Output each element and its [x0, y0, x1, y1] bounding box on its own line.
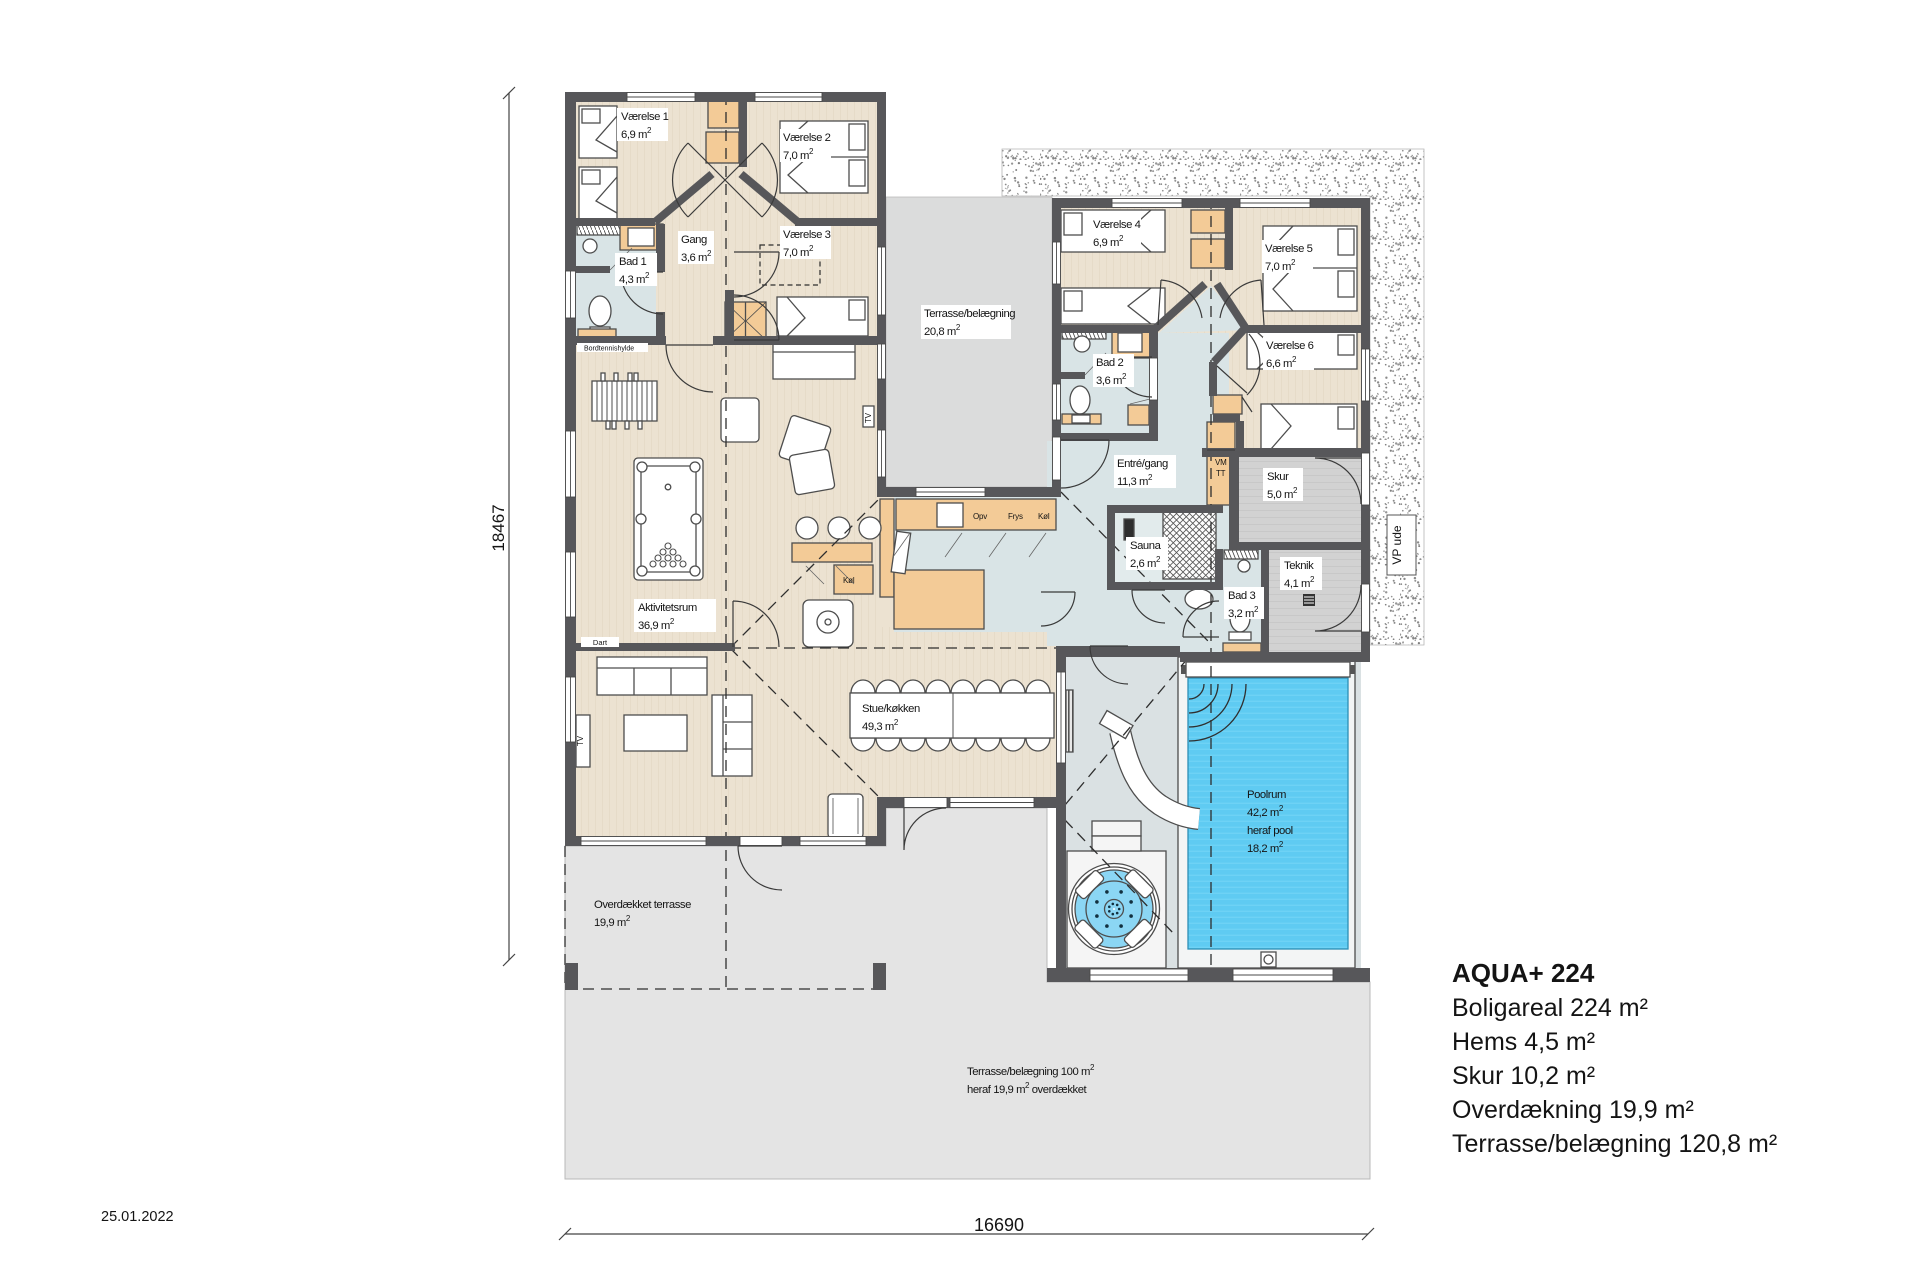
- svg-text:VP ude: VP ude: [1390, 525, 1404, 564]
- svg-text:TT: TT: [1216, 469, 1226, 478]
- svg-text:VM: VM: [1215, 458, 1227, 467]
- svg-text:Boligareal 224 m²: Boligareal 224 m²: [1452, 994, 1648, 1022]
- svg-text:Terrasse/belægning 100 m2: Terrasse/belægning 100 m2: [967, 1063, 1095, 1078]
- svg-text:TV: TV: [864, 412, 873, 423]
- svg-text:Poolrum: Poolrum: [1247, 789, 1286, 801]
- svg-text:Bordtennishylde: Bordtennishylde: [584, 346, 634, 353]
- svg-text:42,2 m2: 42,2 m2: [1247, 804, 1284, 819]
- svg-text:Terrasse/belægning: Terrasse/belægning: [924, 308, 1015, 320]
- svg-text:36,9 m2: 36,9 m2: [638, 617, 675, 632]
- svg-text:25.01.2022: 25.01.2022: [101, 1209, 174, 1225]
- svg-text:Aktivitetsrum: Aktivitetsrum: [638, 602, 697, 614]
- svg-text:Skur: Skur: [1267, 471, 1289, 483]
- svg-text:Værelse 3: Værelse 3: [783, 229, 831, 241]
- svg-text:Opv: Opv: [973, 512, 987, 521]
- svg-text:Køl: Køl: [843, 576, 855, 585]
- svg-text:18467: 18467: [489, 504, 508, 551]
- svg-text:Overdækning 19,9 m²: Overdækning 19,9 m²: [1452, 1096, 1694, 1124]
- svg-text:49,3 m2: 49,3 m2: [862, 718, 899, 733]
- svg-text:Dart: Dart: [593, 638, 608, 647]
- svg-text:Terrasse/belægning 120,8 m²: Terrasse/belægning 120,8 m²: [1452, 1130, 1777, 1158]
- svg-text:18,2 m2: 18,2 m2: [1247, 840, 1284, 855]
- svg-text:Hems 4,5 m²: Hems 4,5 m²: [1452, 1028, 1595, 1056]
- svg-text:heraf pool: heraf pool: [1247, 825, 1293, 837]
- svg-text:11,3 m2: 11,3 m2: [1117, 473, 1153, 488]
- svg-text:TV: TV: [576, 735, 585, 746]
- svg-text:Bad 1: Bad 1: [619, 256, 646, 268]
- svg-text:Værelse 1: Værelse 1: [621, 111, 669, 123]
- svg-text:Gang: Gang: [681, 234, 707, 246]
- svg-text:Værelse 2: Værelse 2: [783, 132, 831, 144]
- svg-text:Skur 10,2 m²: Skur 10,2 m²: [1452, 1062, 1595, 1090]
- svg-text:Værelse 4: Værelse 4: [1093, 219, 1141, 231]
- svg-text:Værelse 5: Værelse 5: [1265, 243, 1313, 255]
- svg-text:Entré/gang: Entré/gang: [1117, 458, 1168, 470]
- svg-text:Teknik: Teknik: [1284, 560, 1314, 572]
- svg-text:20,8 m2: 20,8 m2: [924, 323, 961, 338]
- svg-text:Bad 3: Bad 3: [1228, 590, 1255, 602]
- svg-text:Køl: Køl: [1038, 512, 1050, 521]
- svg-text:Overdækket terrasse: Overdækket terrasse: [594, 899, 691, 911]
- svg-text:19,9 m2: 19,9 m2: [594, 914, 631, 929]
- svg-text:Stue/køkken: Stue/køkken: [862, 703, 920, 715]
- svg-text:Værelse 6: Værelse 6: [1266, 340, 1314, 352]
- svg-text:Sauna: Sauna: [1130, 540, 1162, 552]
- svg-text:Frys: Frys: [1008, 512, 1023, 521]
- svg-text:AQUA+ 224: AQUA+ 224: [1452, 958, 1595, 988]
- svg-text:16690: 16690: [974, 1215, 1024, 1235]
- svg-text:Bad 2: Bad 2: [1096, 357, 1123, 369]
